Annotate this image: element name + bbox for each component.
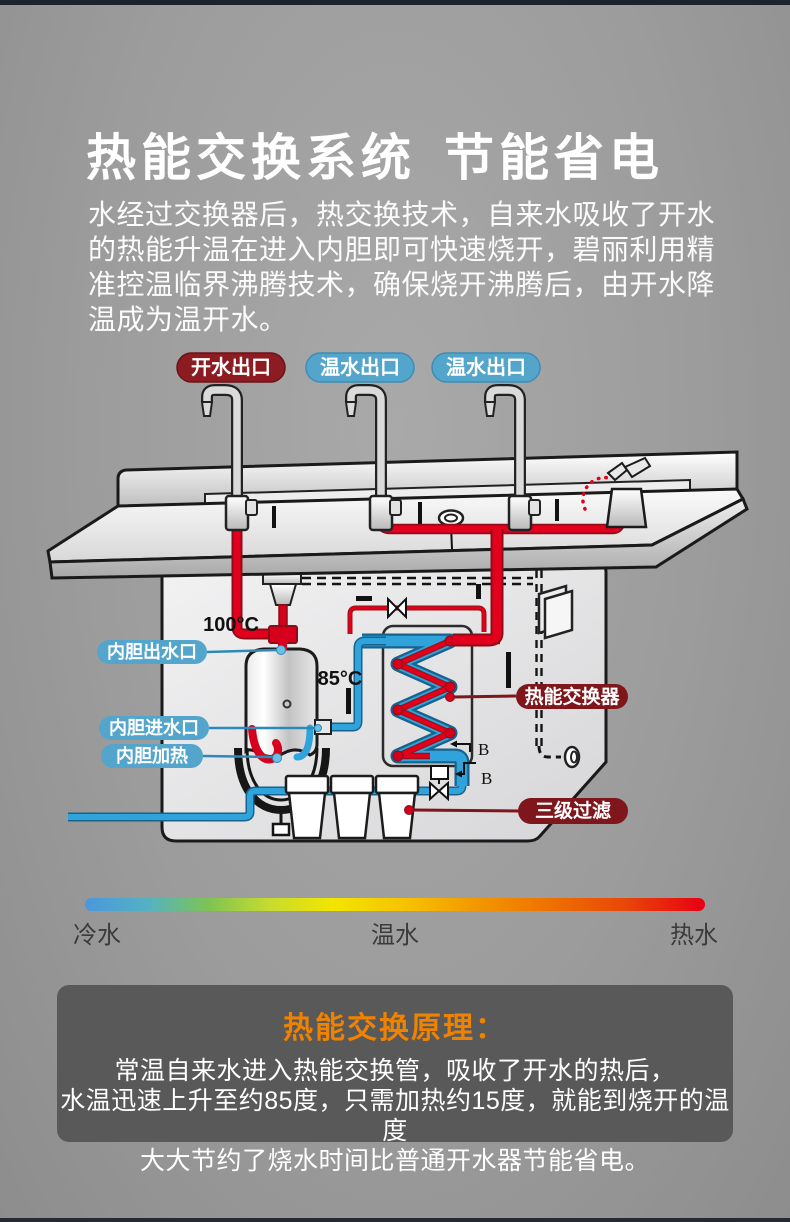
vent-slot-1: [346, 688, 351, 714]
scale-label-hot: 热水: [670, 915, 718, 950]
product-infographic: 热能交换系统节能省电 水经过交换器后，热交换技术，自来水吸收了开水的热能升温在进…: [0, 0, 790, 1222]
scale-label-cold: 冷水: [73, 915, 121, 950]
title-part2: 节能省电: [444, 130, 664, 186]
title-part1: 热能交换系统: [86, 130, 416, 186]
callout-tank-inlet-label: 内胆进水口: [109, 717, 199, 738]
outlet-pill-boiling: 开水出口: [177, 353, 285, 382]
outlet-pill-warm-1: 温水出口: [306, 353, 414, 382]
principle-line-1: 常温自来水进入热能交换管，吸收了开水的热后，: [57, 1056, 733, 1086]
top-border-strip: [0, 0, 790, 5]
scale-label-warm: 温水: [371, 915, 419, 950]
electrical-box: [539, 586, 572, 638]
counter-drain: [439, 511, 463, 526]
principle-box: 热能交换原理： 常温自来水进入热能交换管，吸收了开水的热后， 水温迅速上升至约8…: [57, 985, 733, 1142]
drain-grommet: [565, 747, 579, 767]
callout-filter-label: 三级过滤: [535, 799, 611, 822]
bottom-border-strip: [0, 1218, 790, 1222]
outlet-pill-warm-1-label: 温水出口: [320, 355, 400, 379]
callout-tank-outlet-label: 内胆出水口: [107, 641, 197, 662]
marker-b2: B: [481, 769, 492, 788]
wiring-terminal-bar: [476, 584, 481, 599]
outlet-pill-boiling-label: 开水出口: [191, 356, 271, 379]
principle-heading: 热能交换原理：: [57, 1003, 733, 1047]
temperature-gradient-bar: [85, 898, 705, 911]
system-diagram: B B: [0, 338, 790, 886]
callout-heat-exchanger-label: 热能交换器: [524, 685, 620, 708]
outlet-pill-warm-2-label: 温水出口: [446, 355, 526, 379]
filter-cartridges: [286, 776, 418, 838]
principle-text: 常温自来水进入热能交换管，吸收了开水的热后， 水温迅速上升至约85度，只需加热约…: [57, 1056, 733, 1176]
callout-tank-heater-label: 内胆加热: [116, 745, 188, 766]
vent-slot-2: [506, 652, 511, 688]
temp-tank-top: 100°C: [203, 614, 259, 636]
temp-preheat: 85°C: [318, 668, 363, 690]
principle-line-2: 水温迅速上升至约85度，只需加热约15度，就能到烧开的温度: [57, 1086, 733, 1146]
marker-b1: B: [478, 740, 489, 759]
intro-paragraph: 水经过交换器后，热交换技术，自来水吸收了开水的热能升温在进入内胆即可快速烧开，碧…: [88, 197, 716, 337]
page-title: 热能交换系统节能省电: [86, 118, 746, 190]
bypass-minus-mark: [356, 596, 372, 601]
outlet-pill-warm-2: 温水出口: [432, 353, 540, 382]
tank-top-tee-fitting: [269, 626, 297, 643]
principle-line-3: 大大节约了烧水时间比普通开水器节能省电。: [57, 1146, 733, 1176]
